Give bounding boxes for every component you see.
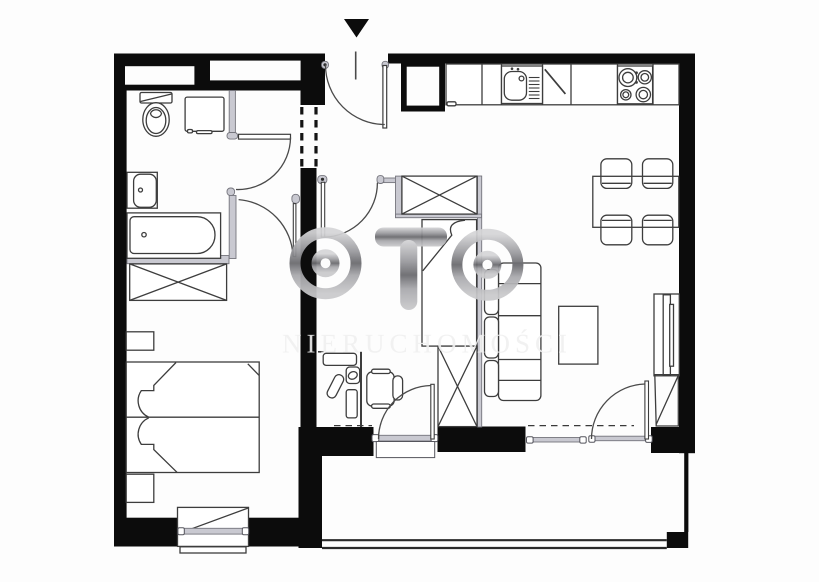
svg-text:NIERUCHOMOŚCI: NIERUCHOMOŚCI: [282, 329, 572, 359]
